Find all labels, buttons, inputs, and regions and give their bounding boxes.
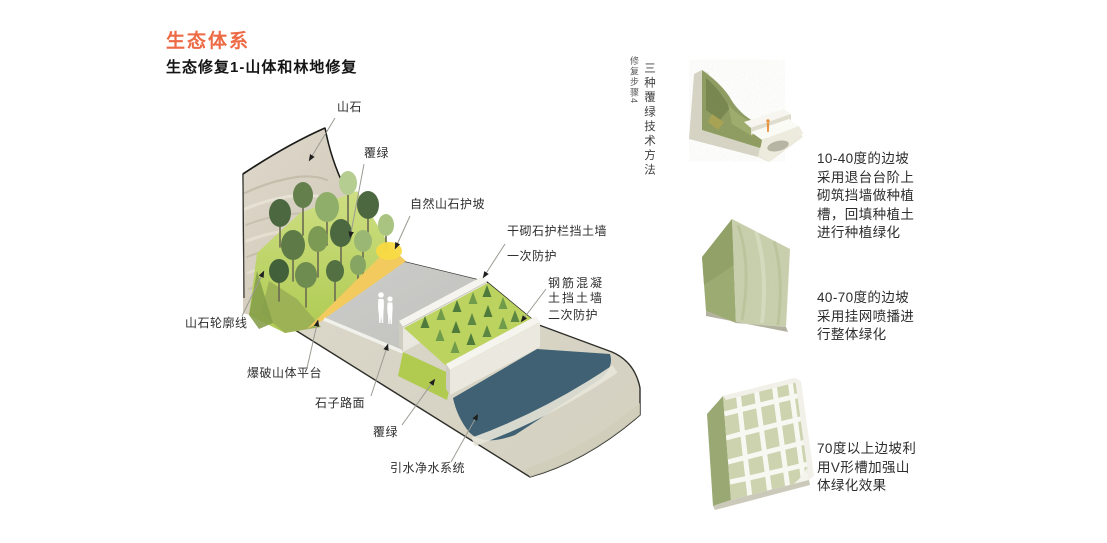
diagram-label-blasted-platform: 爆破山体平台: [247, 366, 322, 381]
method-description-terrace: 10-40度的边坡 采用退台台阶上 砌筑挡墙做种植 槽，回填种植土 进行种植绿化: [817, 150, 937, 243]
vertical-method-title: 三种覆绿技术方法: [641, 62, 657, 178]
diagram-label-green-cover-bottom: 覆绿: [373, 425, 398, 440]
method-diagram-v-groove: [697, 368, 817, 510]
method-description-v-groove: 70度以上边坡利 用V形槽加强山 体绿化效果: [817, 440, 937, 496]
diagram-label-concrete-wall: 钢筋混凝 土挡土墙: [548, 276, 604, 306]
page-subtitle: 生态修复1-山体和林地修复: [166, 56, 357, 77]
diagram-label-primary-protection: 一次防护: [507, 249, 557, 264]
diagram-label-green-cover-top: 覆绿: [364, 146, 389, 161]
method-description-mesh-spray: 40-70度的边坡 采用挂网喷播进 行整体绿化: [817, 289, 937, 345]
wedge-front-face: [730, 215, 792, 330]
page-title: 生态体系: [166, 26, 250, 53]
diagram-label-secondary-protection: 二次防护: [548, 308, 598, 323]
method-diagram-terrace: [672, 60, 807, 180]
diagram-label-rock-contour: 山石轮廓线: [185, 316, 248, 331]
diagram-label-masonry-wall: 干砌石护栏挡土墙: [507, 224, 607, 239]
method-diagram-mesh-spray: [692, 205, 807, 333]
diagram-label-water-system: 引水净水系统: [390, 461, 465, 476]
diagram-label-natural-stone-slope: 自然山石护坡: [410, 197, 485, 212]
wedge-left-face: [702, 219, 736, 323]
diagram-label-rock: 山石: [337, 100, 362, 115]
vertical-step-label: 修复步骤4: [628, 56, 641, 105]
slide: 生态体系 生态修复1-山体和林地修复: [0, 0, 1107, 543]
diagram-label-gravel-road: 石子路面: [315, 396, 365, 411]
